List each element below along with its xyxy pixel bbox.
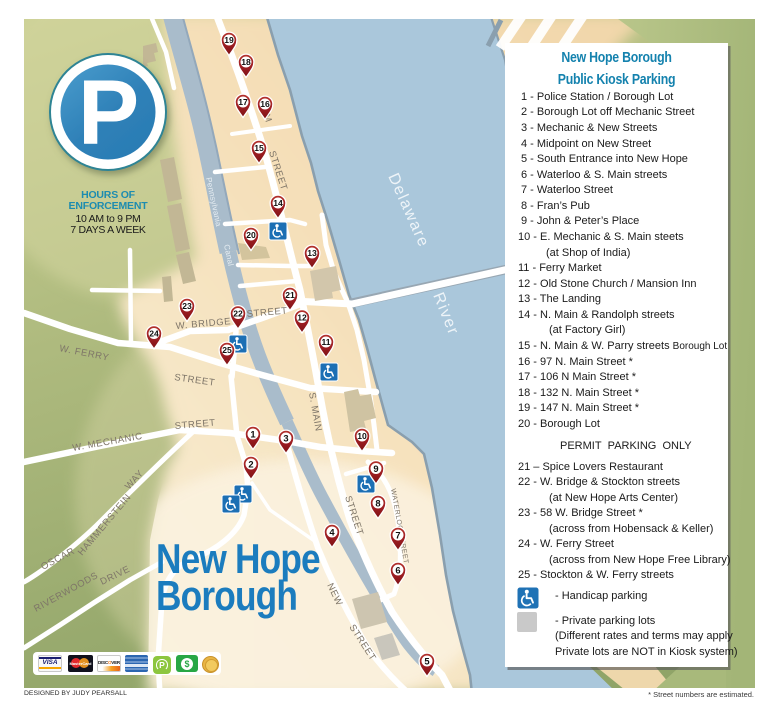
svg-text:2: 2 xyxy=(248,458,253,469)
svg-text:20: 20 xyxy=(246,230,256,240)
svg-text:9: 9 xyxy=(373,463,378,474)
svg-text:10: 10 xyxy=(357,431,367,441)
svg-text:23: 23 xyxy=(182,301,192,311)
svg-text:14: 14 xyxy=(273,198,283,208)
svg-text:13: 13 xyxy=(307,248,317,258)
svg-text:25: 25 xyxy=(222,345,232,355)
svg-text:17: 17 xyxy=(238,97,248,107)
svg-text:15: 15 xyxy=(254,143,264,153)
svg-text:19: 19 xyxy=(224,35,234,45)
svg-text:8: 8 xyxy=(375,497,380,508)
svg-text:6: 6 xyxy=(395,564,400,575)
svg-text:22: 22 xyxy=(233,309,243,319)
svg-text:P: P xyxy=(78,62,139,164)
svg-text:12: 12 xyxy=(297,313,307,323)
svg-text:24: 24 xyxy=(149,329,159,339)
svg-text:21: 21 xyxy=(285,290,295,300)
svg-text:11: 11 xyxy=(321,337,330,347)
svg-text:5: 5 xyxy=(424,655,429,666)
svg-text:3: 3 xyxy=(283,432,288,443)
svg-text:1: 1 xyxy=(250,428,255,439)
svg-text:16: 16 xyxy=(260,99,270,109)
svg-text:7: 7 xyxy=(395,529,400,540)
svg-text:4: 4 xyxy=(329,526,335,537)
svg-text:18: 18 xyxy=(241,57,251,67)
